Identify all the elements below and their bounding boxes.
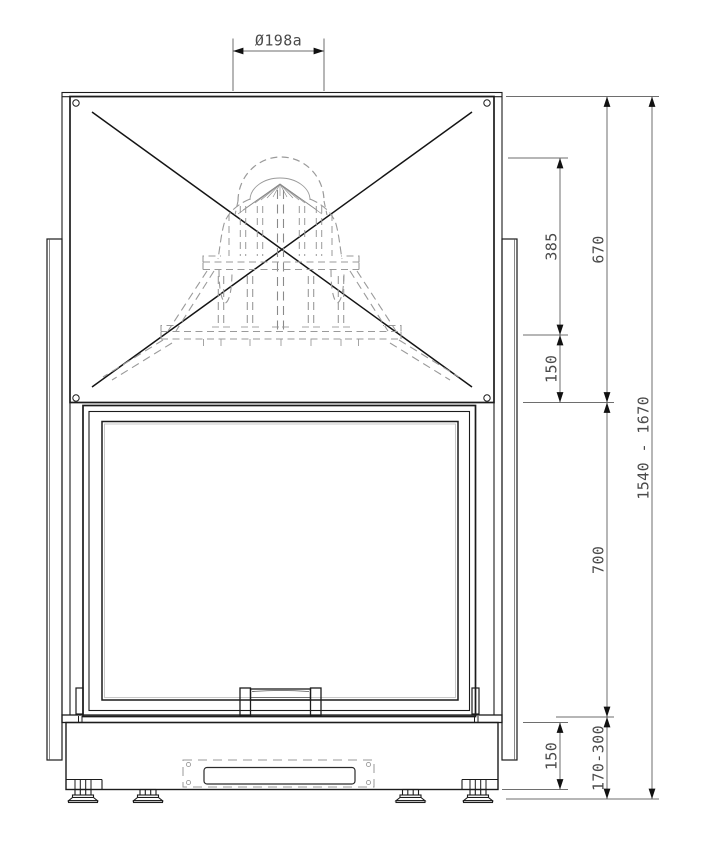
door-handle <box>240 688 321 716</box>
dim-label-base-clearance: 170-300 <box>590 725 608 791</box>
corner-screw-icon <box>73 395 79 401</box>
dim-label-door-section: 700 <box>590 546 608 574</box>
vent-grille <box>183 760 374 787</box>
hood-panel <box>70 97 494 403</box>
door-glass <box>102 422 458 701</box>
dim-label-flue-diameter: Ø198a <box>255 32 302 50</box>
dim-label-hood: 670 <box>590 235 608 263</box>
corner-screw-icon <box>73 100 79 106</box>
foot-bracket-right <box>462 780 498 790</box>
corner-screw-icon <box>484 100 490 106</box>
foot-bracket-left <box>66 780 102 790</box>
leveling-foot <box>134 790 163 803</box>
dim-label-dome-height: 385 <box>543 232 561 260</box>
flue-dome-hidden <box>103 157 459 380</box>
door-hinge-left <box>76 688 83 723</box>
dim-label-plinth: 150 <box>543 742 561 770</box>
side-wall-right <box>502 239 517 760</box>
leveling-foot <box>69 790 98 803</box>
door-inner-frame <box>89 412 470 711</box>
door-outer-frame <box>83 406 476 717</box>
door-assembly <box>76 406 479 723</box>
technical-drawing: Ø198a 385 150 150 670 700 170-300 1540 -… <box>0 0 709 863</box>
side-wall-left <box>47 239 62 760</box>
technical-drawing-page: Ø198a 385 150 150 670 700 170-300 1540 -… <box>0 0 709 863</box>
dimensions: Ø198a 385 150 150 670 700 170-300 1540 -… <box>233 32 659 800</box>
plinth <box>66 723 498 803</box>
leveling-foot <box>396 790 425 803</box>
leveling-foot <box>464 790 493 803</box>
dim-label-collar: 150 <box>543 355 561 383</box>
corner-screw-icon <box>484 395 490 401</box>
dim-label-overall: 1540 - 1670 <box>635 396 653 500</box>
